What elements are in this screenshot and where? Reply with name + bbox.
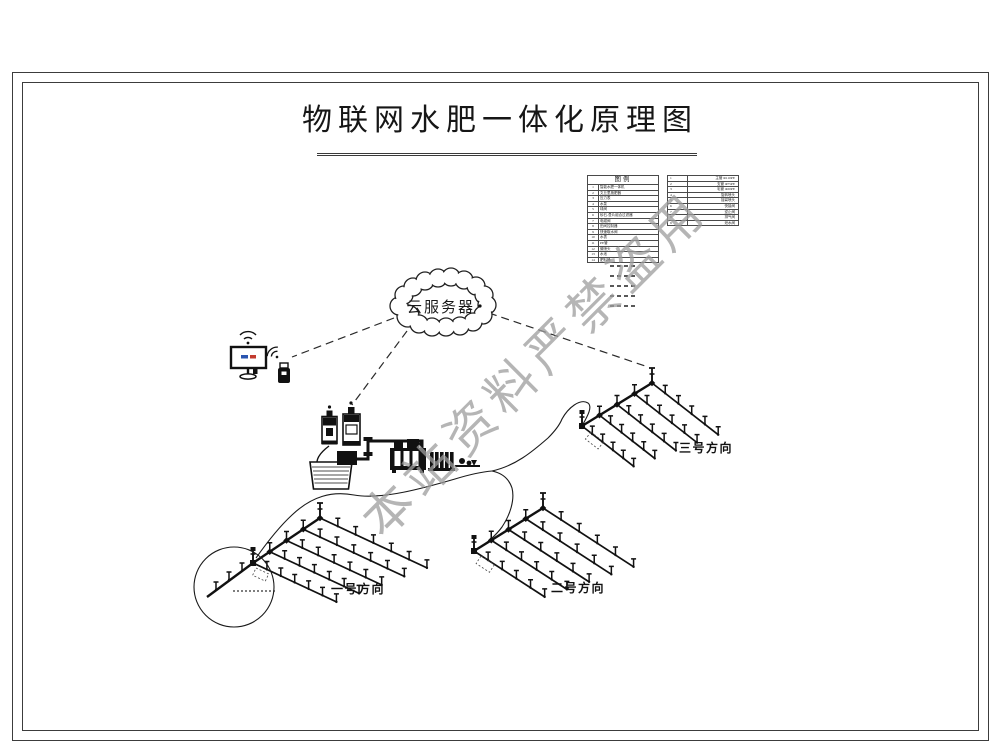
field-label-3: 三号方向: [679, 440, 733, 455]
screen-blue-mark: [241, 355, 248, 359]
cloud-dot: [478, 304, 481, 307]
water-pump: [337, 451, 357, 465]
wifi-icon: [265, 345, 283, 363]
field-label-1: 一号方向: [331, 581, 385, 596]
outlet-valves: [455, 458, 480, 466]
monitor-icon: [231, 332, 266, 380]
pipeline-main: [256, 471, 492, 558]
wifi-icon: [240, 332, 256, 339]
schematic-canvas: 云服务器: [0, 0, 1000, 750]
fertigation-machine: [390, 439, 426, 473]
legend-linetype-samples: [610, 266, 638, 306]
water-basin: [310, 462, 352, 489]
pipeline-to-field3: [492, 402, 590, 471]
field-block-1: [207, 503, 429, 603]
drawing-page: 物联网水肥一体化原理图 图例 1智能水肥一体机2文丘里施肥器3压力表4水泵5球阀…: [0, 0, 1000, 750]
cloud-server-label: 云服务器: [407, 299, 475, 316]
detail-callout-circle: [194, 547, 274, 627]
supply-pipelines: [256, 402, 590, 558]
field-head-callouts: [253, 432, 604, 581]
link-cloud-to-controller: [352, 331, 407, 405]
screen-red-mark: [250, 355, 256, 359]
link-cloud-to-field3: [489, 313, 648, 367]
monitor-stand-block: [253, 369, 258, 374]
fertilizer-tank-b: [343, 401, 360, 445]
field-label-2: 二号方向: [551, 580, 605, 595]
fertigation-equipment: [310, 401, 480, 489]
phone-icon: [265, 345, 290, 383]
fertilizer-tank-a: [322, 405, 337, 444]
link-cloud-to-monitor: [292, 318, 394, 357]
filter-bank: [428, 452, 455, 471]
